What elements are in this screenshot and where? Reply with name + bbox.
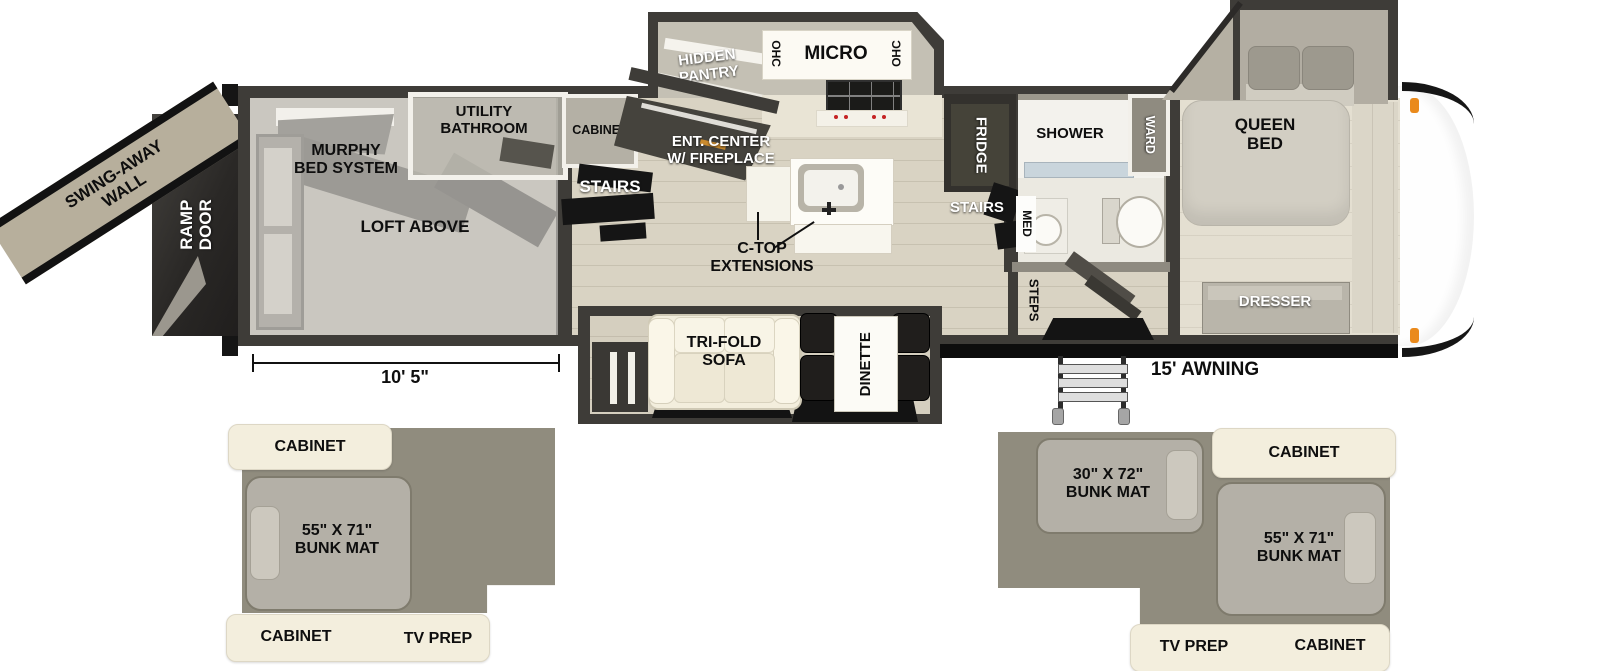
steps-area: STEPS [1022, 272, 1044, 328]
murphy-bed-label: MURPHY BED SYSTEM [284, 142, 408, 177]
tri-fold-sofa-label: TRI-FOLD SOFA [676, 334, 772, 369]
ladder-rung-2 [1058, 378, 1128, 388]
loft-left-tv-prep-label: TV PREP [392, 630, 484, 648]
fridge-label: FRIDGE [972, 117, 989, 174]
ladder-rung-1 [1058, 364, 1128, 374]
queen-bed-label: QUEEN BED [1232, 116, 1298, 153]
stairs-right-label: STAIRS [940, 200, 1014, 217]
burner-knob-2 [844, 115, 848, 119]
dresser-label: DRESSER [1212, 294, 1338, 311]
loft-right-bunk-small-label: 30" X 72" BUNK MAT [1052, 466, 1164, 501]
ctop-extensions-label: C-TOP EXTENSIONS [710, 240, 814, 275]
med-label: MED [1019, 211, 1032, 238]
stove-counter-strip [816, 110, 908, 127]
fridge: FRIDGE [951, 104, 1009, 186]
rv-floorplan-canvas: RAMP DOOR SWING-AWAY WALL MURPHY BED SYS… [0, 0, 1600, 671]
utility-bathroom-label: UTILITY BATHROOM [418, 104, 550, 137]
loft-left-cabinet-top: CABINET [228, 424, 392, 470]
ramp-door-label: RAMP DOOR [177, 200, 214, 251]
loft-right-cabinet-top: CABINET [1212, 428, 1396, 478]
ohc-left: OHC [764, 34, 786, 74]
loft-left-pillow [250, 506, 280, 580]
dimension-tick-right [558, 354, 560, 372]
bed-pillow-right [1302, 46, 1354, 90]
swing-wall-hinge-bottom [222, 334, 238, 356]
ctop-pointer-left [757, 212, 759, 240]
marker-light-top [1410, 98, 1419, 113]
awning-label: 15' AWNING [1130, 360, 1280, 381]
slide-end-window-1 [610, 352, 617, 404]
dinette-label: DINETTE [858, 332, 875, 396]
dimension-line [252, 362, 560, 364]
shower-ledge [1024, 162, 1134, 178]
loft-left-cabinet-bottom-label: CABINET [246, 628, 346, 646]
sofa-armrest-left [648, 318, 675, 404]
ohc-left-label: OHC [768, 41, 781, 68]
toilet [1116, 196, 1164, 248]
loft-above-label: LOFT ABOVE [350, 218, 480, 237]
ward-label: WARD [1142, 116, 1156, 154]
burner-knob-1 [834, 115, 838, 119]
slide-end-window-2 [628, 352, 635, 404]
ohc-right-label: OHC [890, 41, 903, 68]
steps-label: STEPS [1026, 279, 1040, 322]
dinette-chair-2 [800, 355, 838, 401]
sink-basin [804, 170, 858, 206]
garage-dimension-label: 10' 5" [330, 368, 480, 388]
countertop-extension-left [746, 166, 792, 222]
loft-right-tv-prep-label: TV PREP [1146, 638, 1242, 656]
entry-mat [1042, 318, 1154, 340]
medicine-cabinet: MED [1016, 196, 1036, 252]
burner-knob-3 [872, 115, 876, 119]
loft-right-cabinet-top-label: CABINET [1268, 444, 1339, 462]
stove-cooktop [826, 80, 902, 114]
sofa-armrest-right [773, 318, 800, 404]
ladder-rung-3 [1058, 392, 1128, 402]
marker-light-bottom [1410, 328, 1419, 343]
dinette-chair-1 [800, 313, 838, 353]
dinette-table: DINETTE [834, 316, 898, 412]
shower-label: SHOWER [1024, 126, 1116, 143]
ladder-foot-right [1118, 408, 1130, 425]
loft-right-pillow-small [1166, 450, 1198, 520]
ent-center-label: ENT. CENTER W/ FIREPLACE [640, 134, 802, 167]
burner-knob-4 [882, 115, 886, 119]
ladder-foot-left [1052, 408, 1064, 425]
loft-left-cabinet-top-label: CABINET [274, 438, 345, 456]
utility-bath-fixture [499, 137, 554, 169]
loft-right-cabinet-bottom-label: CABINET [1282, 637, 1378, 655]
loft-left-bunk-label: 55" X 71" BUNK MAT [288, 522, 386, 557]
slide-end-cabinet [592, 342, 648, 412]
stairs-left-label: STAIRS [566, 178, 654, 197]
sink-drain [838, 184, 844, 190]
microwave-label: MICRO [800, 38, 872, 70]
loft-right-bunk-large-label: 55" X 71" BUNK MAT [1244, 530, 1354, 565]
faucet-stem [827, 202, 831, 215]
awning-bar [940, 344, 1398, 358]
wardrobe: WARD [1128, 94, 1170, 176]
ohc-right: OHC [886, 34, 908, 74]
ramp-door-shading [152, 256, 206, 336]
bedroom-front-wardrobe [1352, 102, 1398, 333]
dimension-tick-left [252, 354, 254, 372]
bed-pillow-left [1248, 46, 1300, 90]
stairs-left-step-3 [599, 222, 646, 241]
